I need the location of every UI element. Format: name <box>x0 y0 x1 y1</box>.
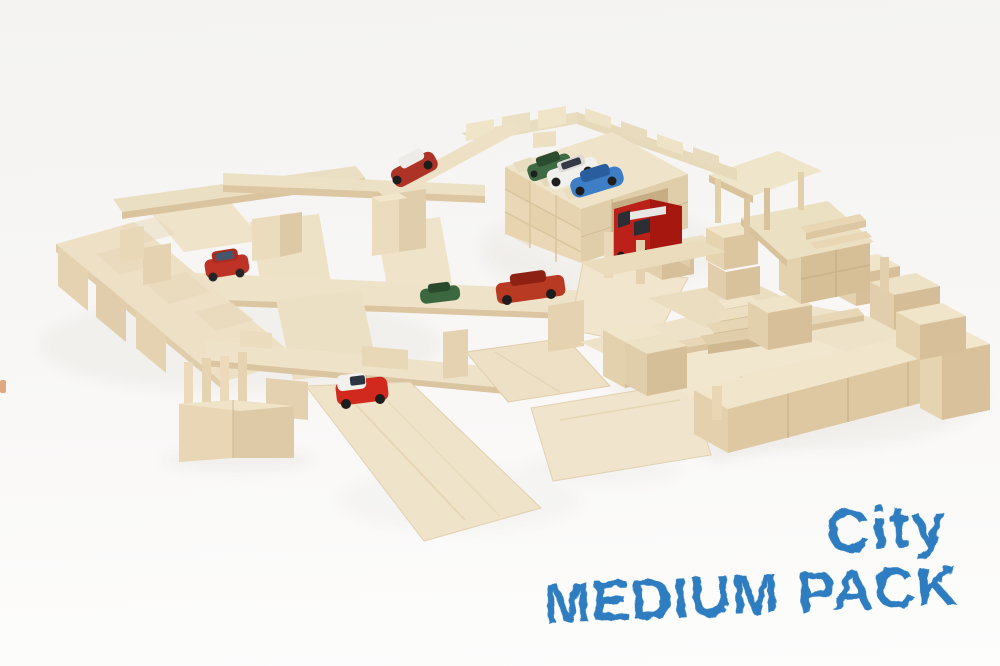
svg-text:MEDIUM PACK: MEDIUM PACK <box>542 554 960 636</box>
